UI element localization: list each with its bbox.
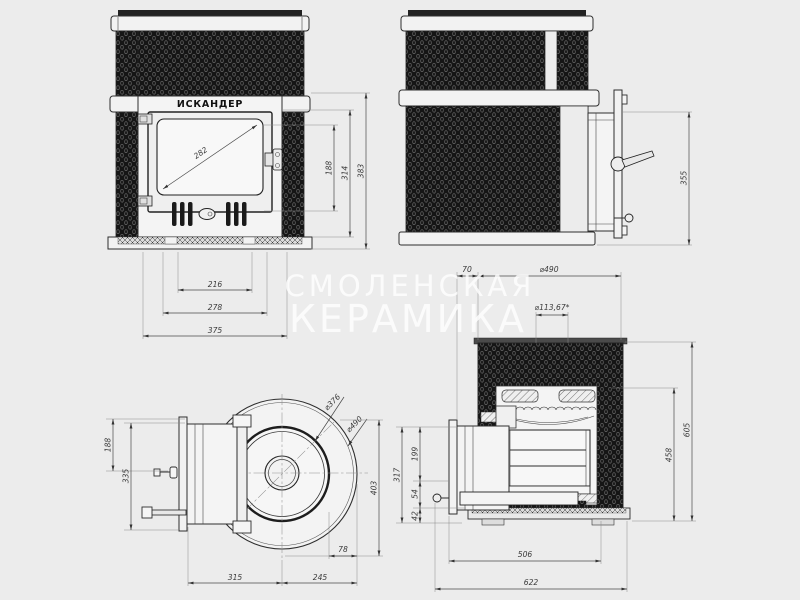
ash-drawer xyxy=(460,492,578,505)
dim-body-diameter-top: ⌀490 xyxy=(344,414,364,434)
dim-body-diameter-section: ⌀490 xyxy=(539,265,558,274)
side-mesh-upper xyxy=(406,31,588,97)
stove-drawing-svg: ИСКАНДЕР 282 188 314 xyxy=(0,0,800,600)
dim-flange-width: 335 xyxy=(122,469,131,484)
dim-door-panel-width: 278 xyxy=(208,303,223,312)
dim-base-height: 42 xyxy=(411,511,420,521)
section-door-flange xyxy=(449,420,457,514)
dim-left-total: 317 xyxy=(393,468,402,483)
watermark-line2: КЕРАМИКА xyxy=(289,297,527,341)
side-middle-band xyxy=(399,90,599,106)
dim-center-to-back: 245 xyxy=(313,573,328,582)
front-mesh-left xyxy=(116,31,138,237)
top-view: 188 335 ⌀376 ⌀490 403 78 315 245 xyxy=(104,392,384,586)
foot-right xyxy=(592,519,614,525)
door-handle-lever xyxy=(622,151,654,167)
front-top-strip xyxy=(118,10,302,16)
firebox xyxy=(506,430,590,486)
brand-label: ИСКАНДЕР xyxy=(177,99,243,110)
technical-drawing-page: ИСКАНДЕР 282 188 314 xyxy=(0,0,800,600)
dim-total-height-section: 605 xyxy=(683,423,692,438)
dim-tunnel-height: 355 xyxy=(680,171,689,186)
handle-boss xyxy=(611,157,625,171)
watermark: СМОЛЕНСКАЯ КЕРАМИКА xyxy=(285,269,536,341)
dim-depth: 403 xyxy=(370,481,379,496)
dim-total-height: 383 xyxy=(357,164,366,179)
front-mesh-upper xyxy=(138,31,282,97)
side-top-cap xyxy=(401,16,593,31)
side-view: 355 xyxy=(399,10,692,245)
dim-stone-bowl-diameter: ⌀376 xyxy=(322,392,342,412)
front-mesh-right xyxy=(282,31,304,237)
dim-firebox-height: 199 xyxy=(411,447,420,462)
dim-tunnel-to-axis: 188 xyxy=(104,438,113,453)
dim-body-depth: 506 xyxy=(518,550,533,559)
dim-total-width: 375 xyxy=(208,326,223,335)
dim-bowl-to-edge: 78 xyxy=(338,545,348,554)
side-door-tunnel xyxy=(588,113,614,231)
air-knob xyxy=(199,209,215,220)
dim-total-depth: 622 xyxy=(524,578,539,587)
ash-knob xyxy=(625,214,633,222)
side-base xyxy=(399,232,595,245)
section-knob xyxy=(433,494,441,502)
stone-rail-left xyxy=(502,390,538,402)
top-air-knob xyxy=(170,467,177,478)
top-door-tunnel xyxy=(187,424,237,524)
dim-opening-height: 188 xyxy=(325,161,334,176)
foot-left xyxy=(482,519,504,525)
dim-vent-span: 216 xyxy=(208,280,223,289)
side-top-strip xyxy=(408,10,586,16)
top-door-frame xyxy=(237,419,247,529)
dim-mid-height: 54 xyxy=(411,489,420,499)
dim-chimney-diameter: ⌀113,67* xyxy=(535,303,570,312)
dim-inner-height: 458 xyxy=(665,448,674,463)
dim-front-to-center: 315 xyxy=(228,573,243,582)
dim-door-module-height: 314 xyxy=(341,166,350,181)
stone-rail-right xyxy=(559,390,595,402)
front-top-cap xyxy=(111,16,309,31)
